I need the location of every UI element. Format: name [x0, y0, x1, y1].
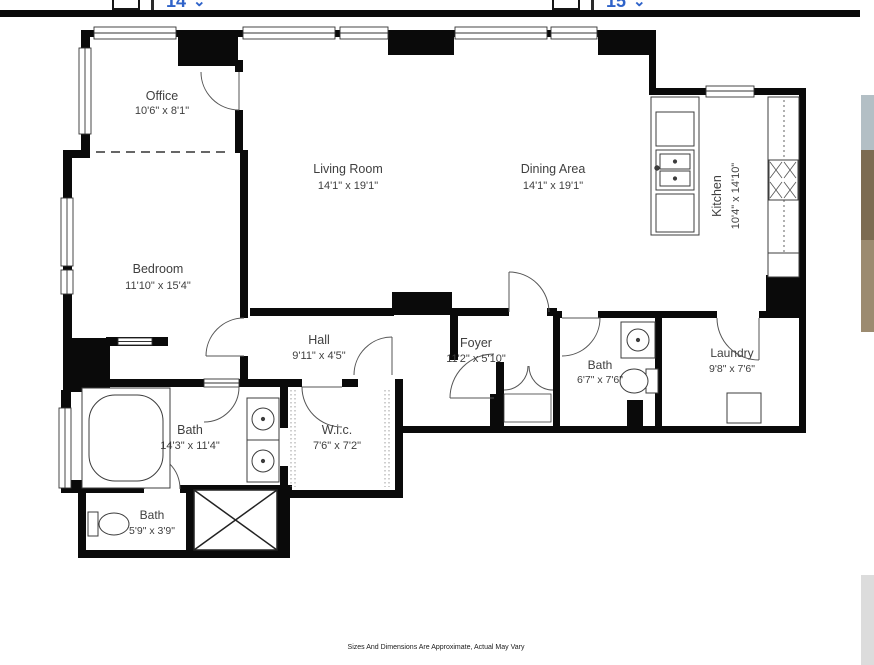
room-label-bath-small: Bath [140, 508, 165, 522]
window [61, 270, 73, 294]
door-closet-double [504, 366, 553, 390]
door-wic [302, 387, 342, 427]
window [551, 27, 597, 39]
room-label-office: Office [146, 89, 178, 103]
door-bath-guest [562, 318, 600, 356]
door-bath-main [204, 387, 239, 422]
kitchen-sink [655, 150, 694, 190]
room-dims-dining-area: 14'1" x 19'1" [523, 180, 583, 192]
vanity-sinks [247, 398, 279, 482]
washer [727, 393, 761, 423]
door-office [201, 72, 239, 110]
room-dims-laundry: 9'8" x 7'6" [709, 363, 755, 375]
room-dims-foyer: 11'2" x 5'10" [446, 353, 506, 365]
room-dims-wic: 7'6" x 7'2" [313, 440, 361, 452]
room-dims-bath-small: 5'9" x 3'9" [129, 525, 175, 537]
room-label-bedroom: Bedroom [133, 262, 184, 276]
room-label-hall: Hall [308, 333, 330, 347]
toilet [620, 369, 658, 393]
room-label-kitchen: Kitchen [710, 175, 724, 217]
window [340, 27, 388, 39]
door-bedroom [206, 318, 244, 356]
room-label-bath-guest: Bath [588, 358, 613, 372]
room-label-laundry: Laundry [710, 346, 753, 360]
room-label-wic: W.i.c. [322, 423, 353, 437]
door-foyer-entry [509, 272, 549, 312]
window [455, 27, 547, 39]
window [61, 198, 73, 266]
fixtures [82, 97, 799, 550]
room-dims-bedroom: 11'10" x 15'4" [125, 280, 191, 292]
sliding-closet-door [118, 338, 152, 345]
screen: 14 ⌄ 15 ⌄ [0, 0, 874, 665]
room-dims-kitchen: 10'4" x 14'10" [730, 163, 742, 230]
room-dims-hall: 9'11" x 4'5" [292, 350, 345, 362]
door-hall-passage [354, 337, 392, 375]
window [243, 27, 335, 39]
room-dims-bath-guest: 6'7" x 7'6" [577, 374, 623, 386]
bathtub [82, 388, 170, 488]
window [706, 86, 754, 97]
disclaimer-text: Sizes And Dimensions Are Approximate, Ac… [348, 644, 525, 651]
room-label-bath-main: Bath [177, 423, 203, 437]
room-label-dining-area: Dining Area [521, 162, 586, 176]
floorplan-image[interactable]: Office 10'6" x 8'1" Living Room 14'1" x … [0, 0, 874, 665]
window [79, 48, 91, 134]
window [59, 408, 71, 488]
room-dims-living-room: 14'1" x 19'1" [318, 180, 378, 192]
stove [769, 160, 798, 200]
closet-shelf [504, 394, 551, 422]
sink [621, 322, 655, 358]
shower [194, 490, 277, 550]
room-dims-office: 10'6" x 8'1" [135, 105, 189, 117]
window [94, 27, 176, 39]
room-label-foyer: Foyer [460, 336, 492, 350]
room-label-living-room: Living Room [313, 162, 382, 176]
room-dims-bath-main: 14'3" x 11'4" [160, 440, 220, 452]
sliding-door [204, 379, 239, 387]
toilet-small [88, 512, 129, 536]
